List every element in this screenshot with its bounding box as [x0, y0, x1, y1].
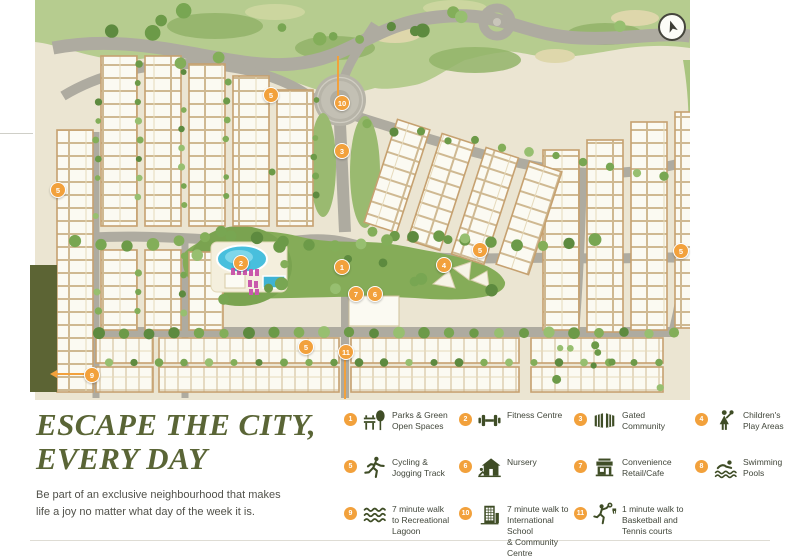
brochure-page: ESCAPE THE CITY, EVERY DAY Be part of an… — [0, 0, 800, 559]
clubhouse — [225, 274, 245, 288]
masterplan-illustration — [35, 0, 690, 400]
leader-line-10 — [337, 56, 339, 96]
map-marker-6: 6 — [367, 286, 383, 302]
legend-item-7: 7Convenience Retail/Cafe — [574, 453, 695, 500]
legend-label: Fitness Centre — [507, 410, 562, 421]
map-marker-5: 5 — [298, 339, 314, 355]
legend-number: 5 — [344, 460, 357, 473]
legend-item-6: 6Nursery — [459, 453, 574, 500]
map-marker-1: 1 — [334, 259, 350, 275]
legend-item-11: 111 minute walk to Basketball and Tennis… — [574, 500, 695, 547]
leader-line-11 — [344, 358, 346, 399]
title-line-2: EVERY DAY — [36, 442, 346, 476]
legend-item-5: 5Cycling & Jogging Track — [344, 453, 459, 500]
gate-icon — [592, 408, 617, 433]
park-bench-tree-icon — [362, 408, 387, 433]
boulevard-green — [310, 113, 336, 217]
runner-icon — [362, 455, 387, 480]
swimmer-icon — [713, 455, 738, 480]
legend-number: 8 — [695, 460, 708, 473]
left-margin-rule — [0, 133, 33, 134]
map-marker-10: 10 — [334, 95, 350, 111]
waves-icon — [362, 502, 387, 527]
masterplan-map — [35, 0, 690, 400]
page-subtitle: Be part of an exclusive neighbourhood th… — [36, 487, 336, 521]
leader-line-9 — [57, 373, 85, 375]
map-marker-4: 4 — [436, 257, 452, 273]
map-marker-5: 5 — [50, 182, 66, 198]
legend-label: 1 minute walk to Basketball and Tennis c… — [622, 504, 683, 537]
dumbbell-icon — [477, 408, 502, 433]
legend-label: Nursery — [507, 457, 537, 468]
north-arrow-icon — [661, 16, 683, 38]
legend-item-3: 3Gated Community — [574, 406, 695, 453]
legend-label: Parks & Green Open Spaces — [392, 410, 448, 432]
legend-number: 4 — [695, 413, 708, 426]
child-balloon-icon — [713, 408, 738, 433]
legend-number: 7 — [574, 460, 587, 473]
map-marker-5: 5 — [263, 87, 279, 103]
map-marker-11: 11 — [338, 344, 354, 360]
map-marker-7: 7 — [348, 286, 364, 302]
legend: 1Parks & Green Open Spaces2Fitness Centr… — [344, 406, 799, 547]
legend-number: 2 — [459, 413, 472, 426]
legend-label: Swimming Pools — [743, 457, 782, 479]
leader-arrow-9 — [50, 370, 57, 378]
map-marker-5: 5 — [673, 243, 689, 259]
legend-number: 10 — [459, 507, 472, 520]
legend-label: Cycling & Jogging Track — [392, 457, 445, 479]
map-marker-3: 3 — [334, 143, 350, 159]
page-title: ESCAPE THE CITY, EVERY DAY — [36, 408, 346, 476]
legend-item-1: 1Parks & Green Open Spaces — [344, 406, 459, 453]
legend-item-10: 107 minute walk to International School … — [459, 500, 574, 547]
title-line-1: ESCAPE THE CITY, — [36, 408, 346, 442]
school-building-icon — [477, 502, 502, 527]
nursery-house-icon — [477, 455, 502, 480]
legend-number: 9 — [344, 507, 357, 520]
compass — [658, 13, 686, 41]
legend-item-2: 2Fitness Centre — [459, 406, 574, 453]
interchange — [483, 8, 511, 36]
legend-item-4: 4Children's Play Areas — [695, 406, 799, 453]
legend-number: 3 — [574, 413, 587, 426]
map-marker-9: 9 — [84, 367, 100, 383]
map-marker-2: 2 — [233, 255, 249, 271]
legend-label: Convenience Retail/Cafe — [622, 457, 672, 479]
legend-label: Children's Play Areas — [743, 410, 784, 432]
map-marker-5: 5 — [472, 242, 488, 258]
legend-number: 1 — [344, 413, 357, 426]
legend-number: 6 — [459, 460, 472, 473]
shop-icon — [592, 455, 617, 480]
legend-number: 11 — [574, 507, 587, 520]
legend-label: Gated Community — [622, 410, 665, 432]
legend-label: 7 minute walk to International School & … — [507, 504, 574, 559]
legend-label: 7 minute walk to Recreational Lagoon — [392, 504, 449, 537]
basketball-player-icon — [592, 502, 617, 527]
legend-item-9: 97 minute walk to Recreational Lagoon — [344, 500, 459, 547]
legend-item-8: 8Swimming Pools — [695, 453, 799, 500]
